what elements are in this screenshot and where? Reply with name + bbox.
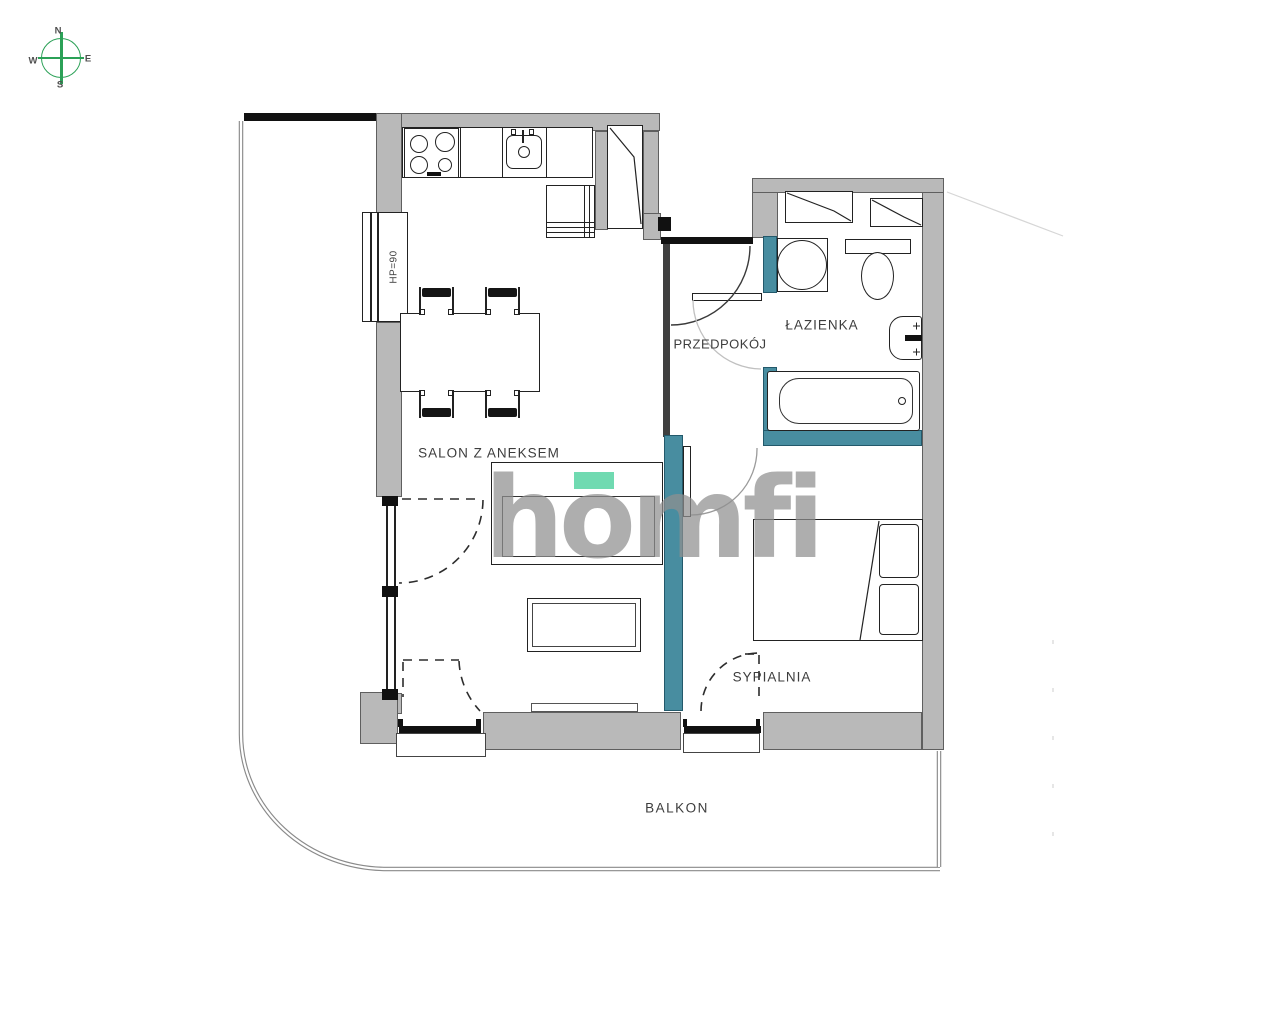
cabinet-line	[589, 185, 590, 238]
sink-tap	[529, 129, 534, 135]
pillow	[879, 524, 919, 578]
kitchen-tall-cabinet	[546, 185, 595, 238]
watermark-logo: homfi	[484, 454, 820, 584]
chair-back	[488, 408, 517, 417]
window-swing-arc	[399, 500, 483, 583]
wall-bottom-bedroom	[763, 712, 922, 750]
bathroom-door-arc	[693, 300, 761, 369]
chair-foot	[420, 390, 425, 396]
chair-foot	[514, 390, 519, 396]
neighbor-line	[947, 192, 1063, 236]
chair-back	[488, 288, 517, 297]
chair-foot	[486, 390, 491, 396]
chair-foot	[448, 390, 453, 396]
toilet-bowl	[861, 252, 894, 300]
balcony-door-living	[399, 726, 481, 733]
bathtub-drain	[898, 397, 906, 405]
entry-mullion	[658, 217, 671, 231]
teal-wall-hall-bath-upper	[763, 236, 777, 293]
room-label-bathroom: ŁAZIENKA	[785, 318, 858, 333]
entrance-door	[661, 237, 753, 244]
window-hp90	[362, 212, 408, 322]
wall-bottom-living	[483, 712, 681, 750]
window-left-glazing	[382, 496, 398, 700]
room-label-living: SALON Z ANEKSEM	[418, 446, 560, 461]
sink-drain	[518, 146, 530, 158]
floor-plan: N S W E HP=90	[0, 0, 1280, 1019]
glazing-mullion	[382, 586, 398, 597]
cabinet-line	[546, 232, 595, 233]
washbasin-faucet	[905, 335, 922, 341]
window-annotation: HP=90	[389, 250, 400, 283]
glazing-mullion	[382, 496, 398, 506]
cabinet-line	[546, 222, 595, 223]
compass-north: N	[55, 26, 62, 37]
door-jamb	[476, 719, 481, 727]
room-label-hallway: PRZEDPOKÓJ	[673, 337, 766, 352]
counter-divider	[546, 127, 547, 178]
door-jamb	[398, 719, 403, 727]
window-hp90-frame-line	[370, 212, 372, 322]
chair-back	[422, 408, 451, 417]
sink-tap	[511, 129, 516, 135]
washing-machine-drum	[777, 240, 827, 290]
glazing-line	[386, 496, 388, 700]
chair-foot	[486, 309, 491, 315]
glazing-mullion	[382, 689, 398, 700]
wall-left-upper	[376, 113, 402, 213]
chair-foot	[448, 309, 453, 315]
cabinet-line	[546, 227, 595, 228]
door-swing-arc	[459, 661, 480, 711]
counter-divider	[460, 127, 461, 178]
chair-foot	[420, 309, 425, 315]
coffee-table-top	[532, 603, 636, 647]
dining-table	[400, 313, 540, 392]
room-label-bedroom: SYPIALNIA	[733, 670, 812, 685]
terrace-top-edge	[244, 113, 376, 121]
wall-niche-right	[643, 131, 659, 215]
bathroom-door-leaf	[692, 293, 762, 301]
wall-right	[922, 192, 944, 750]
teal-wall-bath-bottom	[763, 430, 922, 446]
bathtub-inner	[779, 378, 913, 424]
watermark-accent-bar	[574, 472, 614, 489]
compass-south: S	[57, 80, 63, 91]
chair-foot	[514, 309, 519, 315]
wall-living-hall-partition	[663, 244, 670, 437]
radiator	[531, 703, 638, 712]
chair-back	[422, 288, 451, 297]
stove-burner	[438, 158, 452, 172]
bath-cabinet	[870, 198, 923, 227]
sink-faucet	[522, 130, 524, 143]
dining-chair	[485, 390, 520, 418]
compass-west: W	[29, 56, 38, 67]
entrance-door-arc	[671, 246, 750, 325]
door-jamb	[756, 719, 760, 727]
pillow	[879, 584, 919, 635]
room-label-balcony: BALKON	[645, 801, 709, 816]
glazing-line	[394, 496, 396, 700]
balcony-door-living-sill	[396, 733, 486, 757]
wardrobe	[607, 125, 643, 229]
counter-divider	[502, 127, 503, 178]
bath-cabinet	[785, 191, 853, 223]
door-jamb	[683, 719, 687, 727]
wall-left-mid	[376, 322, 402, 497]
balcony-door-bedroom	[684, 726, 761, 733]
balcony-door-bedroom-sill	[683, 733, 760, 753]
compass-east: E	[85, 54, 91, 65]
cabinet-line	[584, 185, 585, 238]
stove-burner	[435, 132, 455, 152]
dining-chair	[485, 287, 520, 315]
stove-burner	[410, 156, 428, 174]
dining-chair	[419, 287, 454, 315]
stove-handle	[427, 172, 441, 176]
dining-chair	[419, 390, 454, 418]
compass-we-line	[38, 57, 84, 59]
window-hp90-frame-line	[377, 212, 379, 322]
stove-burner	[410, 135, 428, 153]
